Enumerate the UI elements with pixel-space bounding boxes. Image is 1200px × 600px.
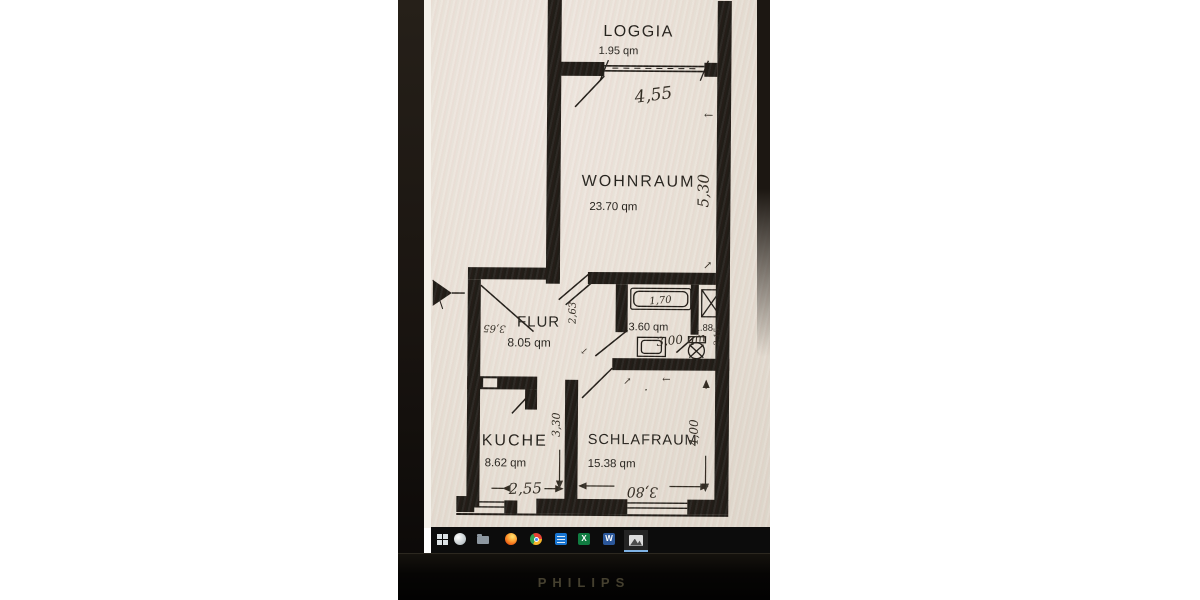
schlafraum-height-dim: 4,00 (687, 419, 701, 447)
kueche-width-dim: 2,55 (507, 479, 542, 498)
flur-label: FLUR (517, 313, 560, 330)
chrome-icon[interactable] (530, 533, 543, 546)
wohnraum-area: 23.70 qm (589, 201, 637, 213)
photo-of-monitor: LOGGIA 1.95 qm WOHNRAUM 23.70 qm FLUR 8.… (398, 0, 770, 600)
door-arrow-2: ← (662, 374, 670, 385)
kueche-height-dim: 3,30 (550, 412, 563, 437)
monitor-bezel: PHILIPS (398, 553, 770, 600)
dim-arrow-up: ← (704, 109, 713, 122)
floorplan-image: LOGGIA 1.95 qm WOHNRAUM 23.70 qm FLUR 8.… (431, 0, 763, 527)
loggia-area: 1.95 qm (599, 45, 639, 57)
excel-icon[interactable]: X (578, 533, 591, 546)
photo-background: LOGGIA 1.95 qm WOHNRAUM 23.70 qm FLUR 8.… (0, 0, 1200, 600)
schlafraum-width-dim: 3,80 (627, 483, 658, 499)
monitor-screen: LOGGIA 1.95 qm WOHNRAUM 23.70 qm FLUR 8.… (431, 0, 770, 527)
bad-area: 3.60 qm (629, 321, 669, 333)
wohnraum-height-dim: 5,30 (694, 174, 712, 208)
flur-right-dim: 2,63 (568, 302, 579, 325)
calendar-app-icon[interactable] (555, 533, 568, 546)
loggia-label: LOGGIA (603, 23, 673, 40)
entrance-arrow (433, 280, 465, 309)
screen-edge-glare (424, 0, 431, 528)
hand-dot: . (644, 379, 648, 393)
flur-left-dim: 3,65 (483, 322, 506, 334)
flur-arrow: ↙ (580, 347, 588, 357)
door-arrow-1: ↗ (623, 376, 631, 387)
kueche-label: KUCHE (482, 432, 548, 449)
photos-icon[interactable] (624, 530, 648, 552)
bezel-edge-line (398, 553, 770, 554)
loggia-width-dim: 4,55 (632, 83, 673, 108)
firefox-icon[interactable] (505, 533, 518, 546)
flur-area: 8.05 qm (507, 335, 550, 349)
dim-arrow-dn: ↗ (703, 259, 712, 272)
schlafraum-area: 15.38 qm (588, 458, 636, 470)
wohnraum-label: WOHNRAUM (582, 173, 696, 191)
start-icon[interactable] (437, 533, 450, 546)
windows-taskbar: X W (431, 527, 770, 553)
photo-left-shadow (398, 0, 424, 600)
monitor-brand-logo: PHILIPS (398, 575, 770, 590)
word-icon[interactable]: W (603, 533, 616, 546)
schlafraum-label: SCHLAFRAUM (588, 432, 698, 449)
kueche-area: 8.62 qm (485, 457, 527, 469)
file-explorer-icon[interactable] (477, 533, 490, 546)
photo-right-shadow (757, 0, 770, 420)
search-icon[interactable] (454, 533, 467, 546)
tub-dim: 1,70 (649, 295, 673, 308)
wc-depth-dim: 2,15 (712, 328, 721, 347)
